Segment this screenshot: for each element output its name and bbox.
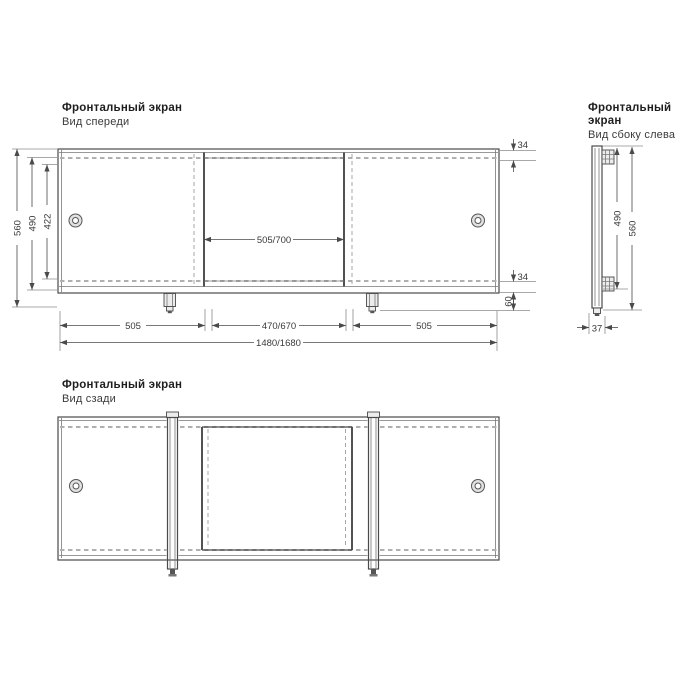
front-dim-left-group: 560 490 422 (11, 149, 57, 307)
rear-handle-hole-left (70, 480, 83, 493)
front-view-drawing: 560 490 422 34 34 60 505/700 (11, 139, 536, 351)
rear-handle-hole-right (472, 480, 485, 493)
dim-label-inner-height: 490 (28, 216, 39, 232)
rear-post-left (167, 412, 179, 577)
front-handle-hole-right (472, 214, 485, 227)
dim-label-leg-drop: 60 (504, 296, 515, 307)
side-bracket-top (602, 150, 614, 164)
front-dim-top-inset-group: 34 (500, 139, 536, 172)
side-foot (594, 308, 601, 316)
front-dim-bottom-right-group: 34 60 (380, 270, 536, 311)
dim-label-span-left: 505 (125, 321, 141, 332)
dim-label-span-right: 505 (416, 321, 432, 332)
dim-label-overall-width: 1480/1680 (256, 338, 301, 349)
side-profile-bar (592, 146, 602, 308)
dim-label-side-inner-height: 490 (613, 211, 624, 227)
rear-view-drawing (58, 412, 499, 577)
front-panel-outline (58, 149, 499, 293)
front-dim-center-panel-group: 505/700 (204, 234, 344, 247)
side-profile-inner-lines (595, 148, 599, 306)
dim-label-side-depth: 37 (592, 324, 603, 335)
dim-label-bottom-inset: 34 (518, 272, 529, 283)
front-center-panel-edges (204, 158, 344, 281)
side-view-drawing: 490 560 37 (577, 146, 643, 335)
rear-stile-lines (62, 418, 496, 558)
dim-label-top-inset: 34 (518, 140, 529, 151)
front-handle-hole-left (69, 214, 82, 227)
dim-label-center-panel-width: 505/700 (257, 235, 291, 246)
front-leg-left (164, 294, 176, 314)
dim-label-panel-height: 422 (43, 214, 54, 230)
dim-label-total-height: 560 (13, 220, 24, 236)
front-leg-right (367, 294, 379, 314)
rear-post-right (368, 412, 380, 577)
rear-center-panel-edges (202, 427, 352, 550)
dim-label-side-total-height: 560 (628, 221, 639, 237)
front-dim-bottom-spans-group: 505 470/670 505 1480/1680 (60, 309, 497, 351)
dim-label-span-center: 470/670 (262, 321, 296, 332)
rear-panel-outline (58, 417, 499, 560)
technical-drawing-canvas: 560 490 422 34 34 60 505/700 (0, 0, 700, 700)
side-dim-group: 490 560 37 (577, 147, 642, 335)
